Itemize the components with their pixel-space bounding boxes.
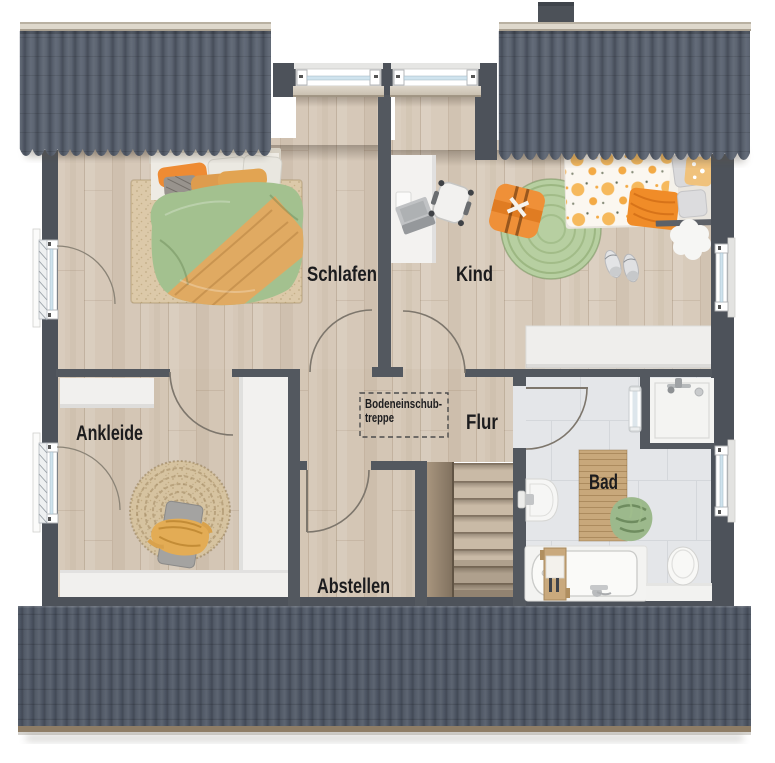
svg-text:Kind: Kind <box>456 263 493 286</box>
svg-text:Schlafen: Schlafen <box>307 263 377 286</box>
svg-text:Bodeneinschub-: Bodeneinschub- <box>365 396 442 411</box>
svg-text:Ankleide: Ankleide <box>76 422 143 445</box>
svg-text:treppe: treppe <box>365 410 394 425</box>
svg-text:Flur: Flur <box>466 411 498 434</box>
svg-text:Bad: Bad <box>589 471 618 494</box>
svg-text:Abstellen: Abstellen <box>317 575 390 598</box>
